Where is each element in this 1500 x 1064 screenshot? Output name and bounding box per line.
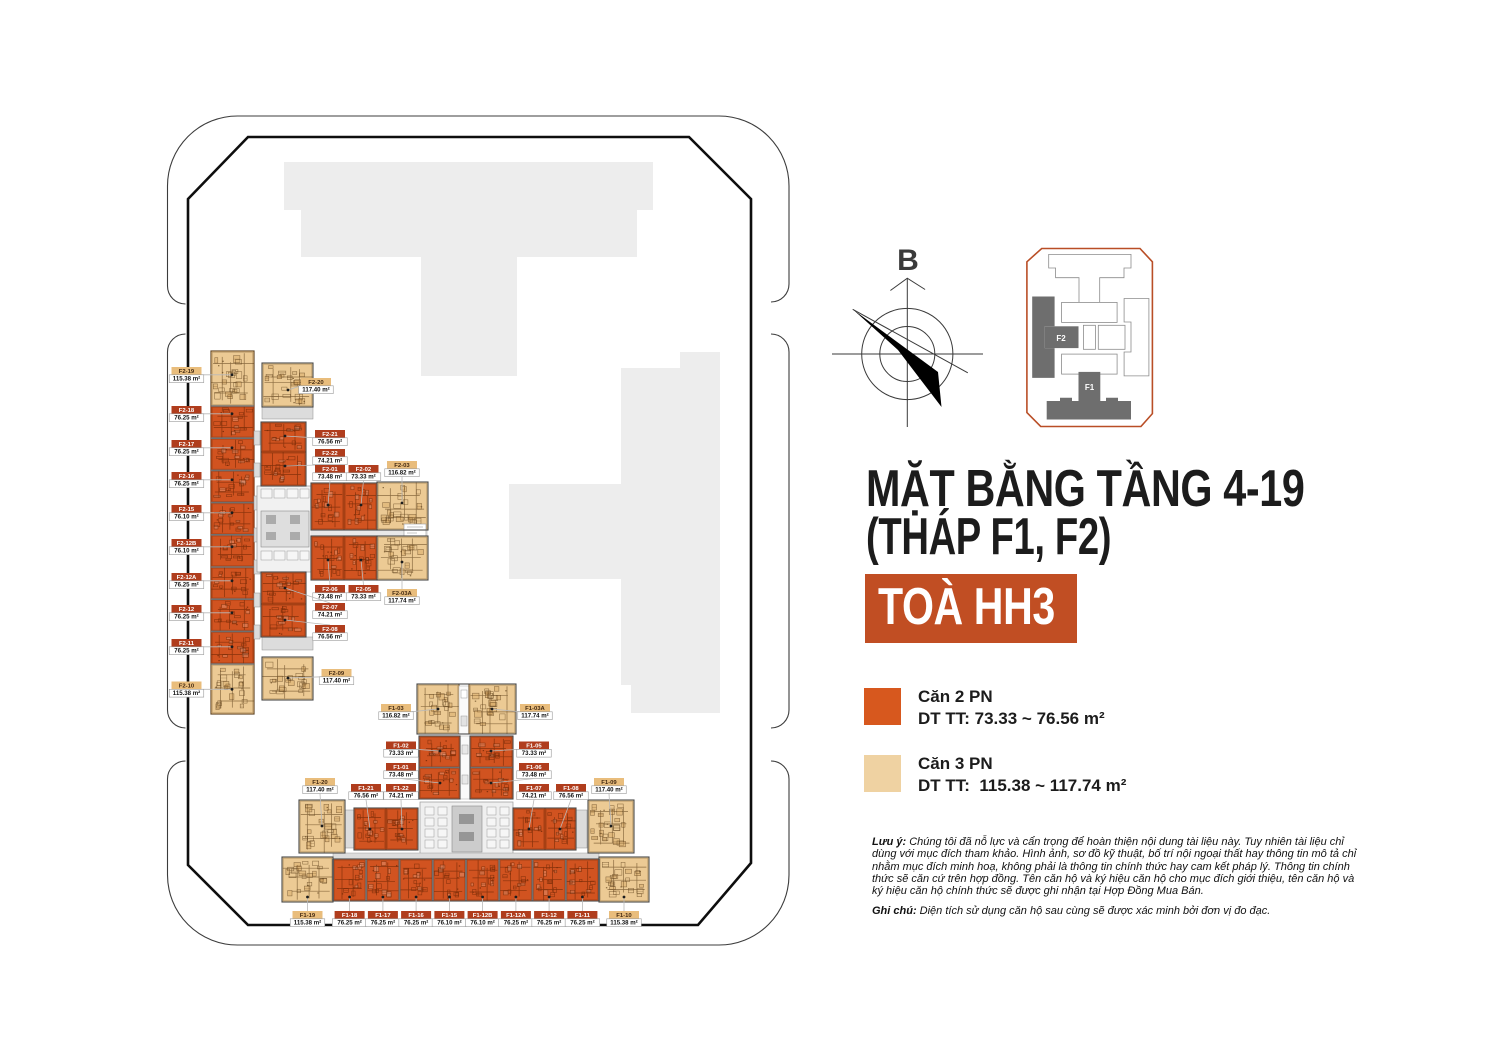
svg-text:F1-02: F1-02 — [393, 743, 409, 749]
svg-text:F2-22: F2-22 — [322, 451, 338, 457]
svg-text:116.82 m²: 116.82 m² — [388, 470, 415, 477]
svg-text:F1-10: F1-10 — [616, 913, 632, 919]
svg-text:F2-03: F2-03 — [394, 463, 410, 469]
svg-text:F1-03: F1-03 — [388, 706, 404, 712]
svg-text:F1-16: F1-16 — [408, 913, 424, 919]
svg-text:F1-18: F1-18 — [342, 913, 358, 919]
svg-text:73.33 m²: 73.33 m² — [389, 750, 413, 757]
svg-text:F1-06: F1-06 — [526, 765, 542, 771]
svg-text:F1-09: F1-09 — [601, 780, 617, 786]
svg-text:115.38 m²: 115.38 m² — [173, 376, 200, 383]
svg-text:73.48 m²: 73.48 m² — [318, 594, 342, 601]
svg-text:73.48 m²: 73.48 m² — [318, 474, 342, 481]
svg-text:117.40 m²: 117.40 m² — [306, 787, 333, 794]
svg-text:F2-15: F2-15 — [179, 507, 195, 513]
svg-text:73.48 m²: 73.48 m² — [389, 772, 413, 779]
svg-text:F1-15: F1-15 — [442, 913, 458, 919]
svg-text:F1-07: F1-07 — [526, 786, 542, 792]
svg-text:F1-12B: F1-12B — [473, 913, 493, 919]
svg-text:76.10 m²: 76.10 m² — [174, 548, 198, 555]
svg-text:117.40 m²: 117.40 m² — [323, 678, 350, 685]
svg-text:F2-12B: F2-12B — [177, 541, 197, 547]
svg-text:F2-02: F2-02 — [356, 467, 372, 473]
svg-text:F2-19: F2-19 — [179, 369, 195, 375]
svg-text:F1-03A: F1-03A — [525, 706, 545, 712]
svg-text:76.25 m²: 76.25 m² — [174, 481, 198, 488]
svg-text:76.10 m²: 76.10 m² — [437, 920, 461, 927]
svg-text:76.25 m²: 76.25 m² — [174, 582, 198, 589]
svg-text:B: B — [897, 244, 919, 277]
svg-text:115.38 m²: 115.38 m² — [294, 920, 321, 927]
svg-text:F1-22: F1-22 — [393, 786, 409, 792]
svg-text:F1-05: F1-05 — [526, 743, 542, 749]
svg-text:F2-05: F2-05 — [356, 587, 372, 593]
svg-text:F2-03A: F2-03A — [392, 591, 412, 597]
svg-text:117.40 m²: 117.40 m² — [302, 387, 329, 394]
svg-text:F1-19: F1-19 — [300, 913, 316, 919]
svg-text:73.48 m²: 73.48 m² — [522, 772, 546, 779]
svg-text:76.25 m²: 76.25 m² — [174, 648, 198, 655]
svg-text:F1: F1 — [1085, 383, 1095, 392]
svg-text:73.33 m²: 73.33 m² — [522, 750, 546, 757]
svg-text:F2-09: F2-09 — [329, 671, 345, 677]
svg-text:73.33 m²: 73.33 m² — [351, 474, 375, 481]
svg-text:F1-21: F1-21 — [358, 786, 374, 792]
svg-text:115.38 m²: 115.38 m² — [173, 690, 200, 697]
svg-text:76.25 m²: 76.25 m² — [504, 920, 528, 927]
svg-text:F1-12: F1-12 — [541, 913, 557, 919]
svg-text:F1-01: F1-01 — [393, 765, 409, 771]
svg-text:73.33 m²: 73.33 m² — [351, 594, 375, 601]
svg-text:76.56 m²: 76.56 m² — [318, 439, 342, 446]
svg-text:76.25 m²: 76.25 m² — [537, 920, 561, 927]
svg-text:76.56 m²: 76.56 m² — [559, 793, 583, 800]
svg-text:116.82 m²: 116.82 m² — [382, 713, 409, 720]
svg-text:F2-12A: F2-12A — [177, 575, 197, 581]
svg-text:F2: F2 — [1056, 334, 1066, 343]
svg-text:F2-20: F2-20 — [308, 380, 324, 386]
svg-text:F2-16: F2-16 — [179, 474, 195, 480]
svg-text:76.25 m²: 76.25 m² — [174, 614, 198, 621]
svg-text:F1-17: F1-17 — [375, 913, 391, 919]
svg-text:F2-11: F2-11 — [179, 641, 195, 647]
svg-text:F2-17: F2-17 — [179, 442, 195, 448]
svg-text:76.25 m²: 76.25 m² — [174, 415, 198, 422]
svg-text:F1-12A: F1-12A — [506, 913, 526, 919]
svg-text:76.25 m²: 76.25 m² — [337, 920, 361, 927]
svg-text:F2-18: F2-18 — [179, 408, 195, 414]
svg-text:F2-10: F2-10 — [179, 683, 195, 689]
svg-text:76.25 m²: 76.25 m² — [174, 449, 198, 456]
svg-text:76.25 m²: 76.25 m² — [371, 920, 395, 927]
svg-text:76.56 m²: 76.56 m² — [318, 634, 342, 641]
svg-text:F1-11: F1-11 — [575, 913, 591, 919]
svg-text:76.25 m²: 76.25 m² — [570, 920, 594, 927]
svg-text:F2-08: F2-08 — [322, 627, 338, 633]
svg-text:F2-06: F2-06 — [322, 587, 338, 593]
svg-text:74.21 m²: 74.21 m² — [389, 793, 413, 800]
svg-text:F1-20: F1-20 — [312, 780, 328, 786]
svg-text:76.10 m²: 76.10 m² — [470, 920, 494, 927]
svg-text:74.21 m²: 74.21 m² — [318, 612, 342, 619]
svg-text:F2-21: F2-21 — [322, 432, 338, 438]
svg-text:117.74 m²: 117.74 m² — [521, 713, 548, 720]
svg-text:117.74 m²: 117.74 m² — [388, 598, 415, 605]
svg-text:F2-01: F2-01 — [322, 467, 338, 473]
svg-text:F1-08: F1-08 — [563, 786, 579, 792]
svg-text:76.10 m²: 76.10 m² — [174, 514, 198, 521]
svg-text:74.21 m²: 74.21 m² — [522, 793, 546, 800]
svg-text:74.21 m²: 74.21 m² — [318, 458, 342, 465]
svg-text:F2-07: F2-07 — [322, 605, 338, 611]
svg-text:117.40 m²: 117.40 m² — [595, 787, 622, 794]
svg-text:115.38 m²: 115.38 m² — [610, 920, 637, 927]
svg-text:76.56 m²: 76.56 m² — [354, 793, 378, 800]
svg-text:76.25 m²: 76.25 m² — [404, 920, 428, 927]
svg-text:F2-12: F2-12 — [179, 607, 195, 613]
